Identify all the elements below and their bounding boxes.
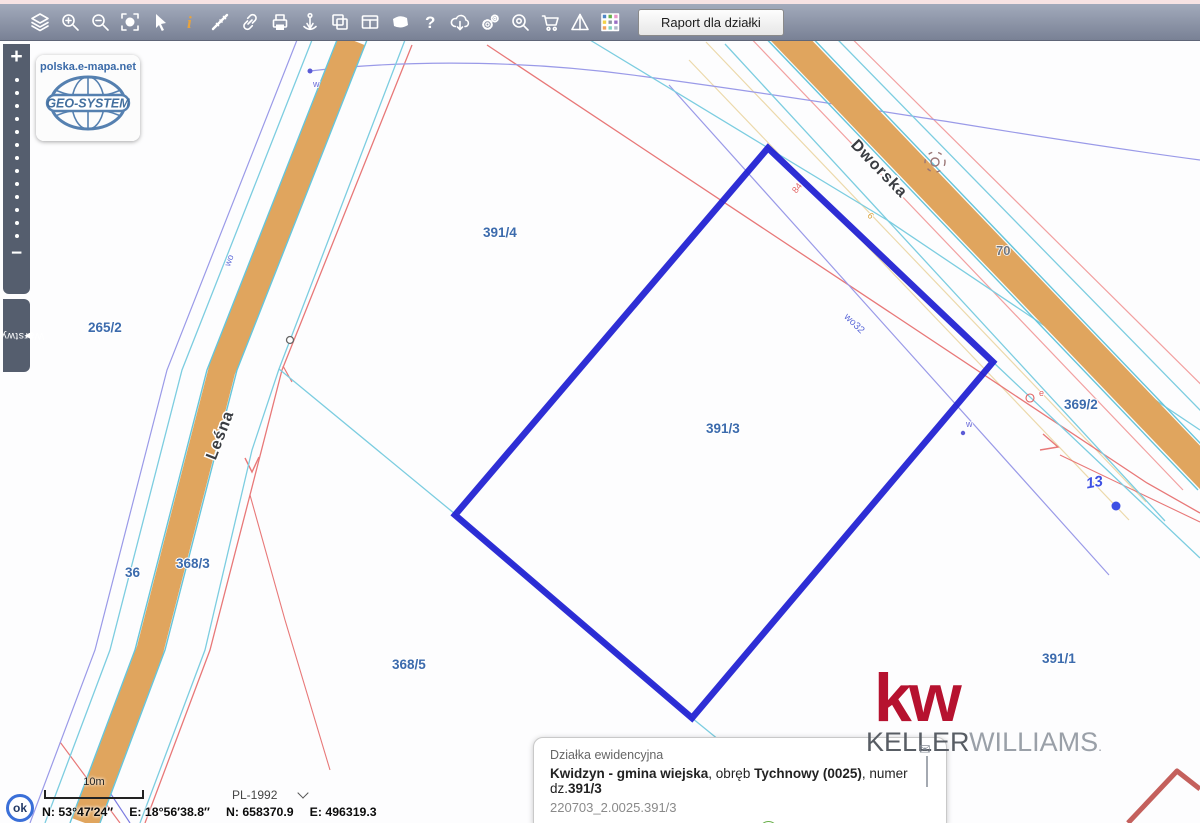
coord-grid-n: N: 658370.9 (226, 805, 294, 819)
parcel-info-panel: Działka ewidencyjna Kwidzyn - gmina wiej… (533, 737, 947, 823)
main-toolbar: i ? Raport dla działki (0, 4, 1200, 41)
svg-text:13: 13 (1085, 473, 1105, 493)
cart-icon[interactable] (538, 10, 562, 34)
scale-bar (44, 790, 144, 799)
zoom-out-icon[interactable] (88, 10, 112, 34)
svg-text:368/5: 368/5 (392, 657, 426, 672)
svg-text:w: w (312, 79, 320, 89)
svg-text:391/4: 391/4 (483, 225, 517, 240)
svg-text:70: 70 (996, 243, 1010, 258)
red-boundary-lines (60, 0, 1200, 823)
geo-system-logo-card: polska.e-mapa.net GEO-SYSTEM (36, 55, 140, 141)
svg-text:391/1: 391/1 (1042, 651, 1076, 666)
info-icon[interactable]: i (178, 10, 202, 34)
settings-gears-icon[interactable] (478, 10, 502, 34)
report-parcel-button[interactable]: Raport dla działki (638, 9, 784, 36)
globe-logo-icon: GEO-SYSTEM (42, 73, 134, 133)
copy-frames-icon[interactable] (328, 10, 352, 34)
parcel-description: Kwidzyn - gmina wiejska, obręb Tychnowy … (550, 766, 930, 796)
svg-text:wo: wo (222, 253, 236, 268)
layers-tab-label: Warstwy (1, 330, 44, 342)
map-canvas[interactable]: 36 Leśna Dworska 265/2 391/4 391/3 369/2… (0, 0, 1200, 823)
scale-label: 10m (44, 776, 144, 788)
search-zoom-icon[interactable] (508, 10, 532, 34)
color-grid-icon[interactable] (598, 10, 622, 34)
boundary-point-marker (287, 337, 294, 344)
layers-panel-tab[interactable]: ▶ Warstwy (3, 299, 30, 372)
zoom-out-button[interactable]: − (11, 245, 22, 263)
ok-button[interactable]: ok (6, 794, 34, 822)
svg-text:e: e (1039, 388, 1044, 398)
prism-3d-icon[interactable] (568, 10, 592, 34)
link-icon[interactable] (238, 10, 262, 34)
site-name: polska.e-mapa.net (36, 61, 140, 73)
print-icon[interactable] (268, 10, 292, 34)
survey-point-icon[interactable] (298, 10, 322, 34)
chevron-down-icon[interactable] (299, 789, 308, 798)
zoom-slider: + − (3, 44, 30, 294)
zoom-area-icon[interactable] (118, 10, 142, 34)
zoom-in-icon[interactable] (58, 10, 82, 34)
svg-text:GEO-SYSTEM: GEO-SYSTEM (46, 97, 130, 111)
coord-geo-n: N: 53°47′24″ (42, 805, 113, 819)
mailbox-marker-icon: ✉ (919, 741, 931, 759)
coordinates-readout: N: 53°47′24″E: 18°56′38.8″N: 658370.9E: … (42, 805, 393, 819)
svg-text:6: 6 (865, 210, 876, 221)
cloud-download-icon[interactable] (448, 10, 472, 34)
svg-text:wo32: wo32 (841, 311, 867, 337)
svg-text:368/3: 368/3 (176, 556, 210, 571)
map-annotations: 70 13 wo32 wo w w e 84 6 (222, 69, 1121, 511)
svg-text:i: i (187, 13, 192, 32)
help-icon[interactable]: ? (418, 10, 442, 34)
svg-text:369/2: 369/2 (1064, 397, 1098, 412)
svg-text:w: w (965, 419, 973, 429)
split-panels-icon[interactable] (358, 10, 382, 34)
app-window: 36 Leśna Dworska 265/2 391/4 391/3 369/2… (0, 0, 1200, 823)
pointer-icon[interactable] (148, 10, 172, 34)
measure-icon[interactable] (208, 10, 232, 34)
roads (70, 6, 1200, 823)
zoom-level-dots[interactable] (15, 78, 19, 238)
parcel-identifier: 220703_2.0025.391/3 (550, 800, 930, 815)
speech-bubble-icon[interactable] (388, 10, 412, 34)
layers-icon[interactable] (28, 10, 52, 34)
road-dworska (766, 14, 1200, 482)
info-panel-title: Działka ewidencyjna (550, 748, 930, 762)
crs-selector[interactable]: PL-1992 (232, 788, 277, 802)
svg-text:265/2: 265/2 (88, 320, 122, 335)
zoom-in-button[interactable]: + (10, 44, 22, 70)
svg-text:?: ? (425, 13, 435, 32)
coord-geo-e: E: 18°56′38.8″ (129, 805, 210, 819)
svg-text:391/3: 391/3 (706, 421, 740, 436)
building-outline (1128, 771, 1200, 823)
coord-grid-e: E: 496319.3 (310, 805, 377, 819)
parcel-label-36: 36 (125, 565, 141, 580)
